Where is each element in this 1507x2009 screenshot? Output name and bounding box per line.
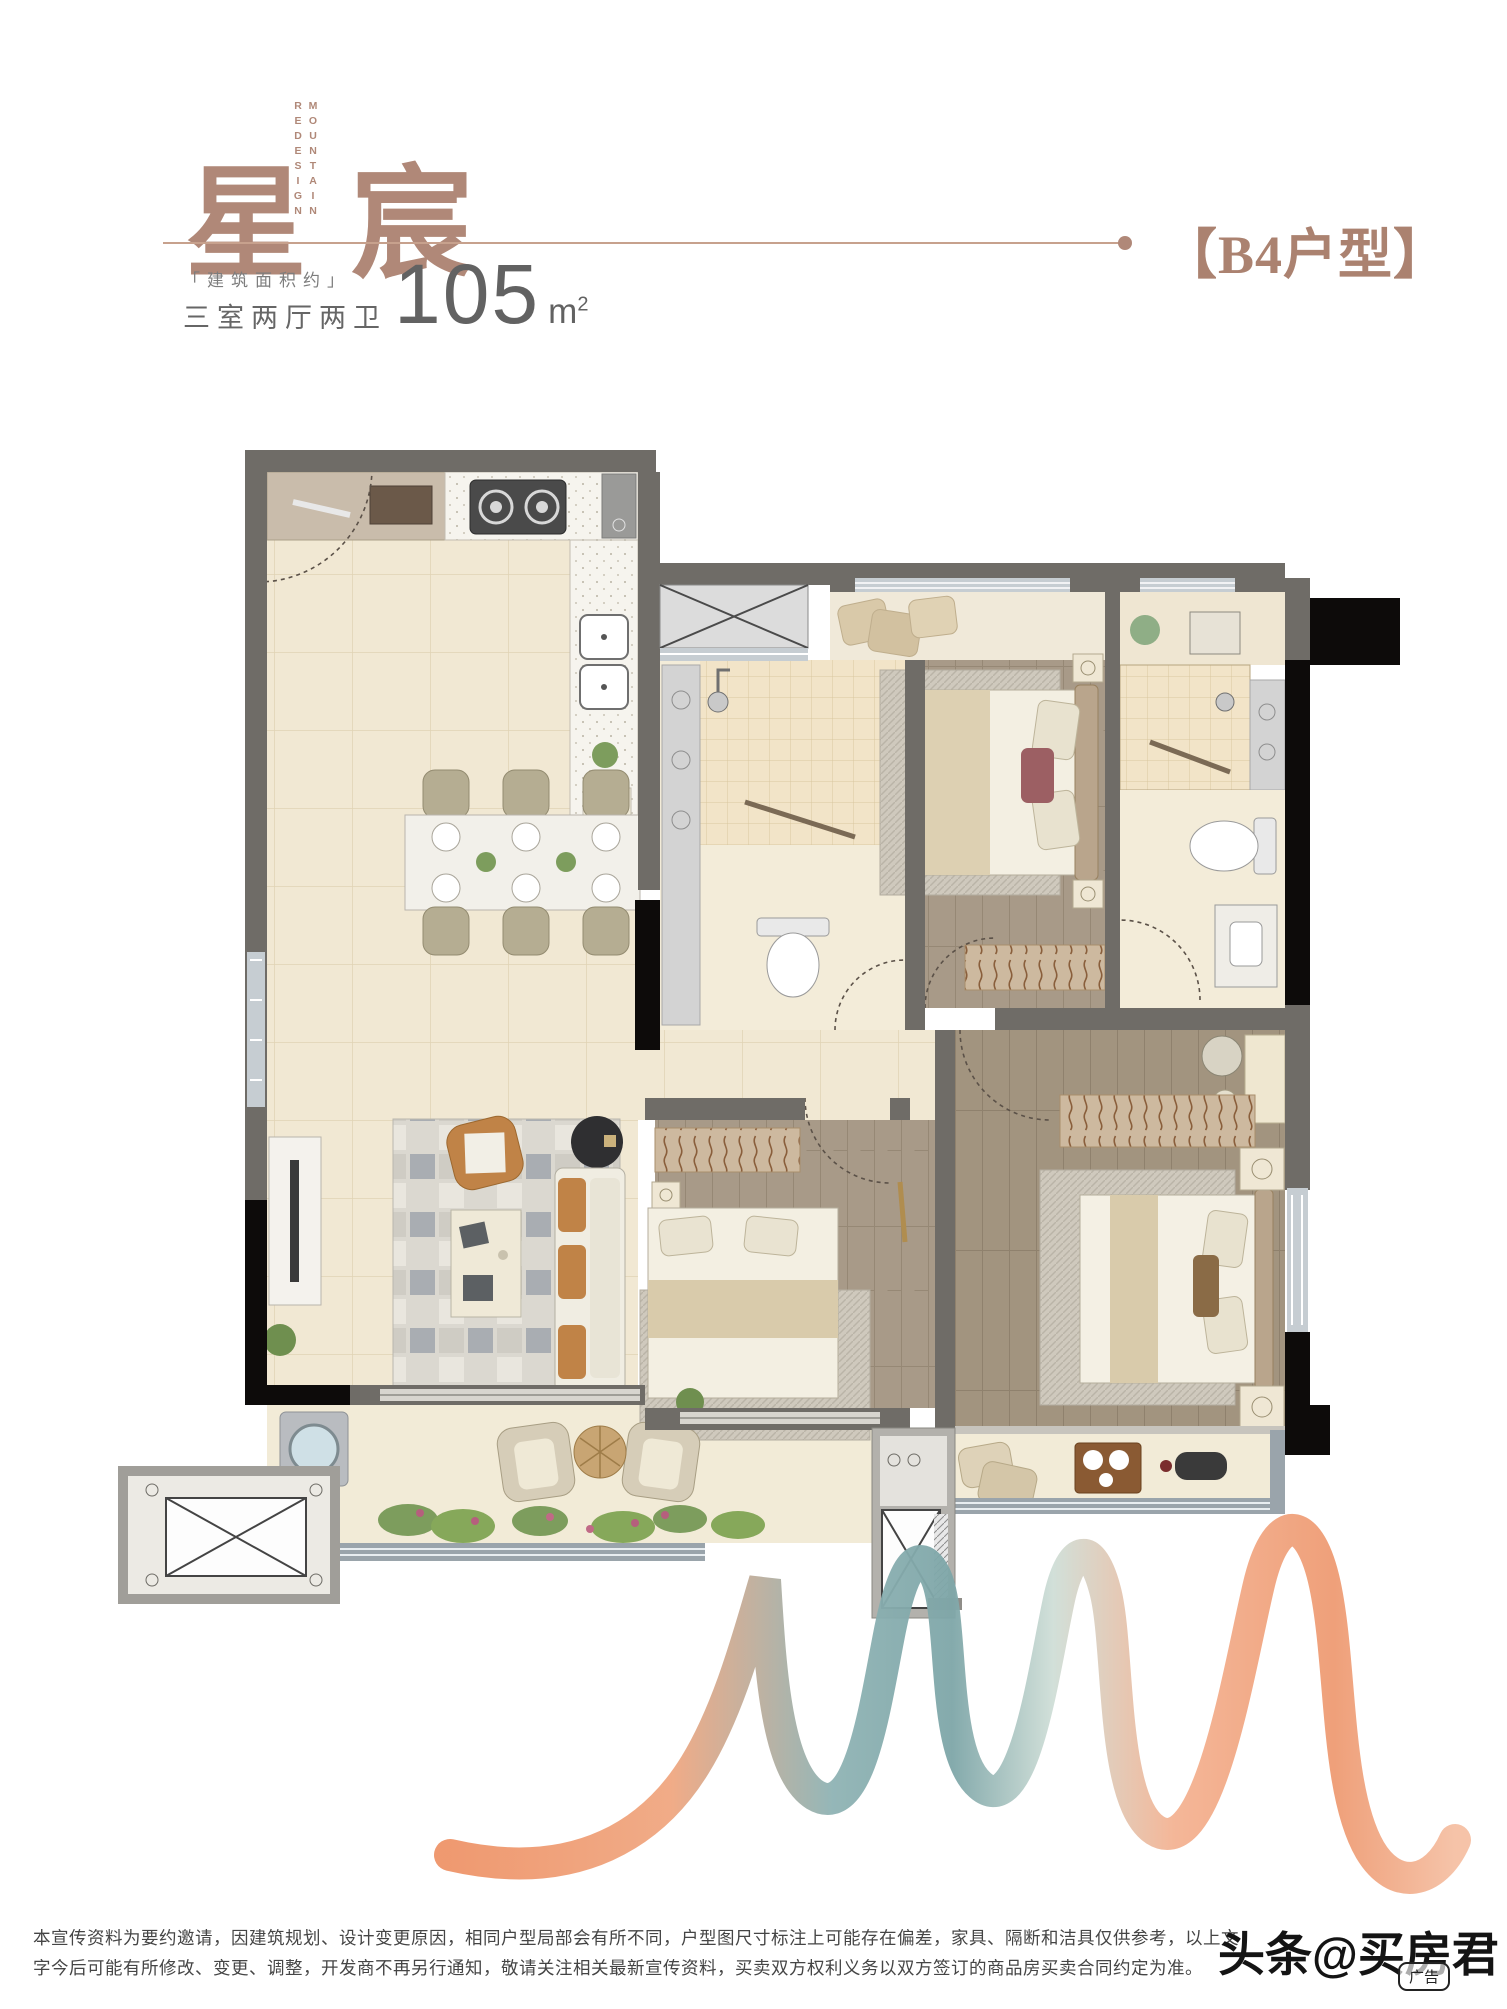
wardrobe	[655, 1128, 800, 1172]
wardrobe	[1060, 1095, 1255, 1147]
cutting-board	[370, 486, 432, 524]
watermark-text: 头条@买房君	[1218, 1916, 1499, 1985]
project-subtitle-vertical: MOUNTAIN REDESIGN	[292, 100, 319, 220]
vertical-word-mountain: MOUNTAIN	[307, 100, 319, 220]
bed-bedroom3	[648, 1208, 838, 1398]
master-bathroom	[1120, 592, 1285, 1008]
sofa	[555, 1168, 625, 1392]
toilet-icon	[1190, 818, 1276, 874]
ribbon-swirl-graphic	[420, 1480, 1507, 1920]
dining-area	[405, 770, 640, 955]
mirror-icon	[1202, 1036, 1242, 1076]
disclaimer-text: 本宣传资料为要约邀请，因建筑规划、设计变更原因，相同户型局部会有所不同，户型图尺…	[33, 1923, 1303, 1983]
area-unit: m2	[548, 292, 588, 332]
divider-end-dot	[1118, 236, 1132, 250]
dark-item	[1175, 1452, 1227, 1480]
area-number: 105	[394, 246, 540, 343]
picture-frame	[1190, 612, 1240, 654]
shower-bathroom	[660, 660, 905, 1030]
disclaimer-line2: 字今后可能有所修改、变更、调整，开发商不再另行通知，敬请关注相关最新宣传资料，买…	[33, 1953, 1303, 1983]
wardrobe	[965, 945, 1105, 990]
plant-icon	[556, 852, 576, 872]
coffee-table	[451, 1210, 521, 1317]
bed-bedroom2	[920, 685, 1098, 880]
disclaimer-line1: 本宣传资料为要约邀请，因建筑规划、设计变更原因，相同户型局部会有所不同，户型图尺…	[33, 1923, 1303, 1953]
area-value: 105 m2	[394, 246, 588, 343]
ribbon-stroke	[450, 1530, 1455, 1878]
shower-head-icon	[1216, 693, 1234, 711]
unit-type-tag: 【B4户型】	[1136, 210, 1448, 289]
header-divider-line	[163, 242, 1120, 244]
vertical-word-redesign: REDESIGN	[292, 100, 304, 220]
plant-icon	[476, 852, 496, 872]
flyer-page: 星宸 MOUNTAIN REDESIGN 【B4户型】 「建筑面积约」 三室两厅…	[0, 0, 1507, 2009]
area-approx-label: 「建筑面积约」	[183, 266, 351, 291]
plant-icon	[264, 1324, 296, 1356]
tv-icon	[290, 1160, 299, 1282]
elevator-lobby-top	[660, 585, 808, 661]
plant-icon	[592, 742, 618, 768]
bed-master	[1080, 1190, 1273, 1388]
plant-icon	[1130, 615, 1160, 645]
floor-plan	[118, 340, 1408, 1630]
elevator-lobby-bottom	[118, 1466, 340, 1604]
stove-icon	[470, 480, 566, 534]
room-layout-label: 三室两厅两卫	[183, 296, 387, 335]
ad-badge: 广告	[1398, 1962, 1450, 1991]
